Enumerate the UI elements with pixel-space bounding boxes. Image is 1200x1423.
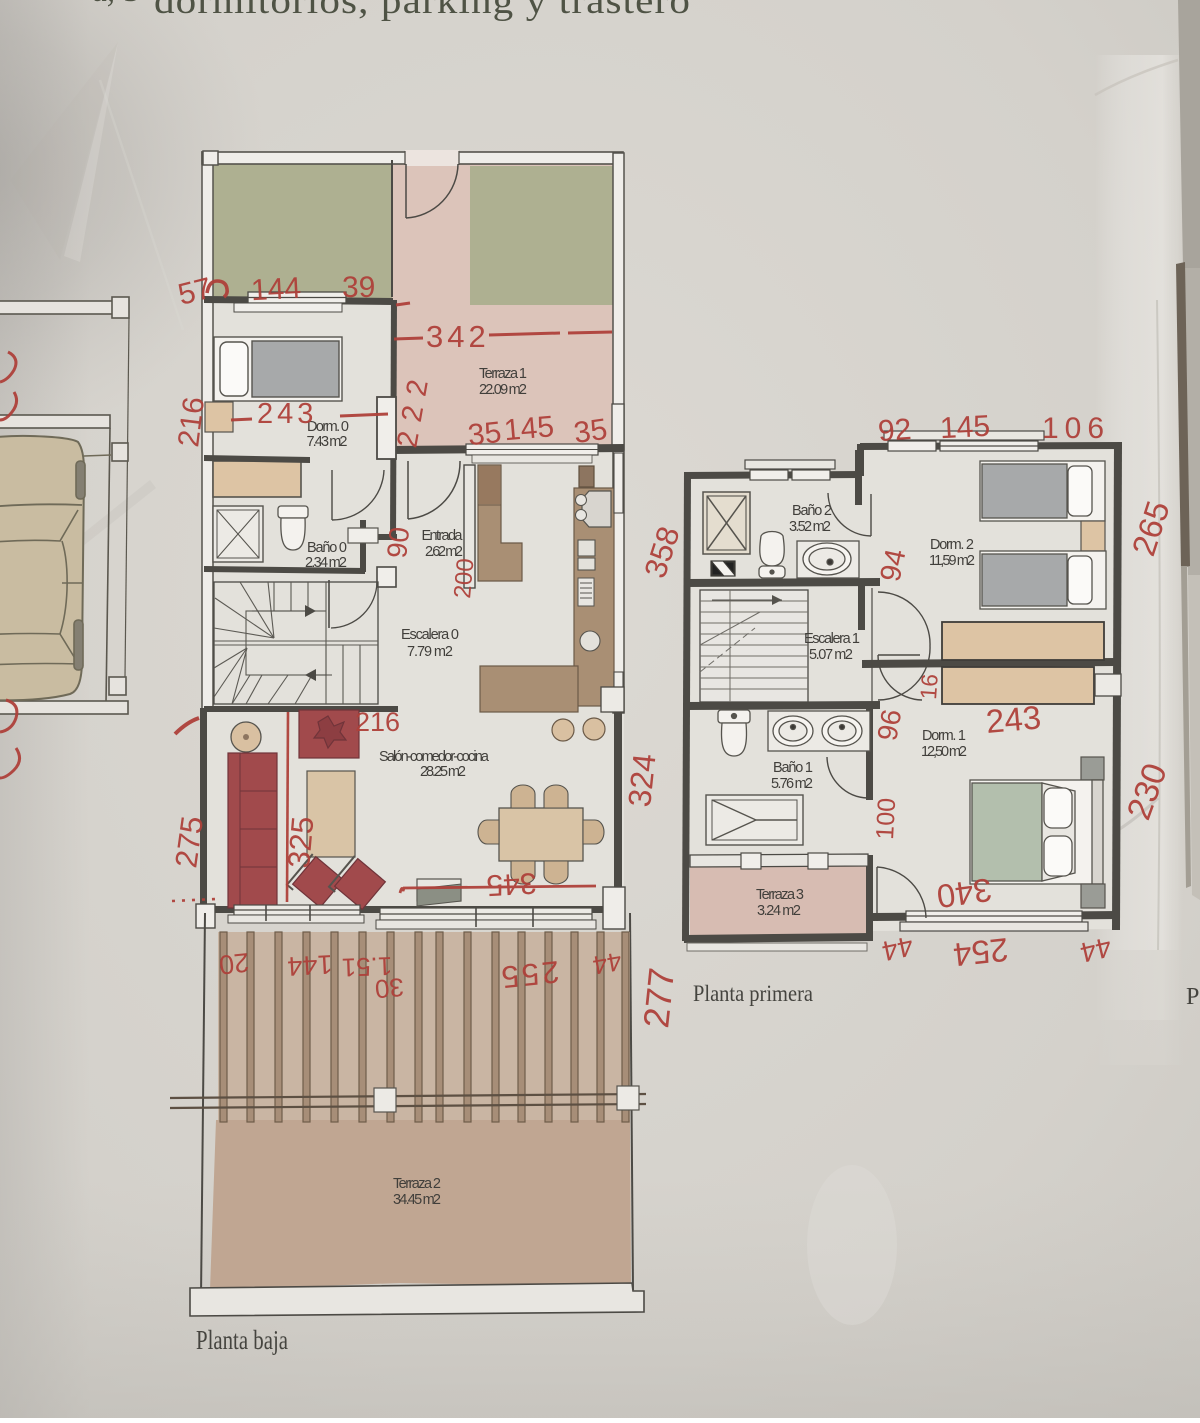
- svg-text:P: P: [1186, 984, 1199, 1010]
- svg-text:Salón-comedor-cocina: Salón-comedor-cocina: [379, 749, 490, 765]
- svg-text:3.24 m2: 3.24 m2: [757, 903, 801, 919]
- svg-text:11,59 m2: 11,59 m2: [929, 553, 975, 569]
- svg-text:2.62 m2: 2.62 m2: [425, 544, 463, 560]
- svg-text:39: 39: [342, 271, 375, 304]
- svg-text:Baño 1: Baño 1: [773, 760, 813, 776]
- svg-text:96: 96: [871, 707, 907, 743]
- svg-text:a, 3: a, 3: [92, 0, 140, 10]
- svg-text:44: 44: [590, 946, 624, 981]
- svg-text:Entrada: Entrada: [422, 528, 464, 544]
- svg-text:30: 30: [374, 972, 405, 1004]
- svg-text:44: 44: [879, 930, 916, 967]
- svg-text:243: 243: [257, 398, 317, 430]
- svg-text:Baño 2: Baño 2: [792, 503, 832, 519]
- svg-text:Terraza 2: Terraza 2: [393, 1176, 441, 1192]
- svg-text:92: 92: [877, 413, 913, 448]
- svg-text:Escalera 1: Escalera 1: [804, 631, 860, 647]
- svg-text:22.09 m2: 22.09 m2: [479, 382, 527, 398]
- svg-text:dormitorios, parking y traster: dormitorios, parking y trastero: [154, 0, 691, 22]
- svg-text:Terraza 3: Terraza 3: [756, 887, 804, 903]
- svg-text:145: 145: [939, 410, 991, 446]
- svg-text:243: 243: [984, 698, 1042, 740]
- svg-text:Dorm. 1: Dorm. 1: [922, 728, 966, 744]
- svg-text:144: 144: [287, 949, 334, 981]
- svg-text:5.76 m2: 5.76 m2: [771, 776, 813, 792]
- svg-text:Terraza 1: Terraza 1: [479, 366, 527, 382]
- svg-text:5.07 m2: 5.07 m2: [809, 647, 853, 663]
- svg-text:Baño 0: Baño 0: [307, 540, 347, 556]
- svg-text:94: 94: [875, 546, 913, 584]
- svg-text:Dorm. 2: Dorm. 2: [930, 537, 974, 553]
- svg-text:325: 325: [281, 815, 320, 870]
- svg-text:200: 200: [449, 557, 479, 599]
- svg-text:106: 106: [1042, 412, 1110, 445]
- svg-text:90: 90: [381, 525, 415, 559]
- svg-text:255: 255: [497, 954, 561, 995]
- svg-text:216: 216: [355, 707, 400, 737]
- svg-text:7.79 m2: 7.79 m2: [407, 644, 453, 660]
- svg-text:3.52 m2: 3.52 m2: [789, 519, 831, 535]
- svg-text:2.34 m2: 2.34 m2: [305, 555, 347, 571]
- svg-text:35: 35: [572, 413, 610, 450]
- svg-text:16: 16: [915, 673, 943, 700]
- svg-text:254: 254: [952, 931, 1011, 974]
- svg-text:Planta primera: Planta primera: [693, 981, 813, 1006]
- svg-text:324: 324: [621, 752, 662, 809]
- svg-text:145: 145: [503, 410, 556, 447]
- svg-text:100: 100: [871, 797, 901, 840]
- svg-text:7.43 m2: 7.43 m2: [307, 434, 348, 450]
- svg-text:34.45 m2: 34.45 m2: [393, 1192, 441, 1208]
- svg-text:12,50 m2: 12,50 m2: [921, 744, 967, 760]
- svg-text:345: 345: [486, 866, 538, 902]
- svg-text:216: 216: [172, 395, 211, 449]
- svg-text:35: 35: [466, 416, 503, 452]
- svg-text:277: 277: [635, 966, 682, 1030]
- svg-text:340: 340: [934, 871, 994, 915]
- svg-text:Planta baja: Planta baja: [196, 1325, 288, 1355]
- svg-text:Escalera 0: Escalera 0: [401, 627, 459, 643]
- svg-text:144: 144: [250, 272, 302, 308]
- svg-text:275: 275: [168, 814, 210, 870]
- svg-text:28.25 m2: 28.25 m2: [420, 764, 466, 780]
- svg-text:20: 20: [217, 947, 250, 980]
- svg-text:342: 342: [426, 319, 490, 354]
